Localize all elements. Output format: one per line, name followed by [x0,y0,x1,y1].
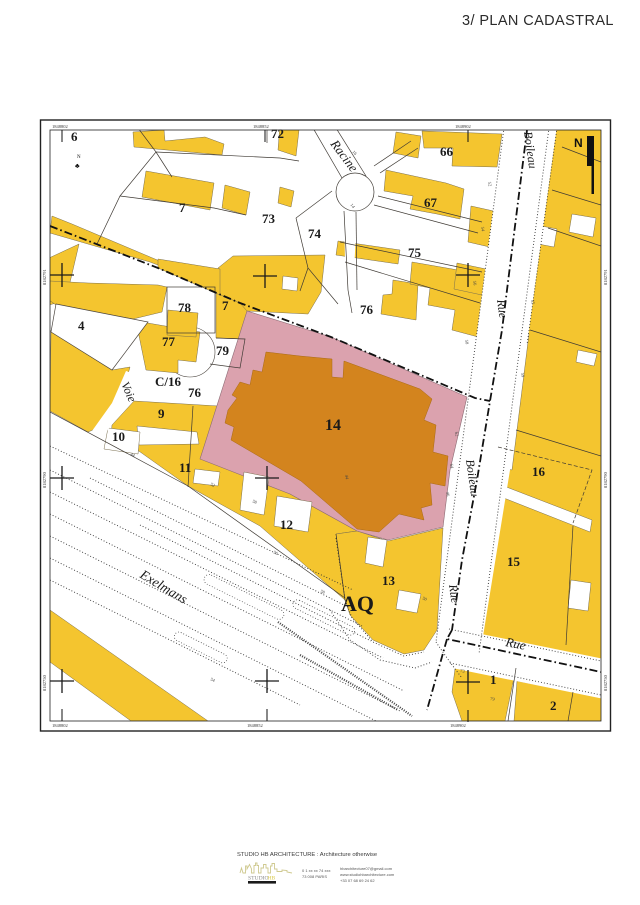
svg-text:72: 72 [271,126,284,141]
svg-text:11: 11 [179,460,191,475]
svg-text:8182790: 8182790 [603,472,608,489]
svg-text:1848902: 1848902 [455,124,471,129]
svg-text:74: 74 [308,226,322,241]
svg-text:66: 66 [440,144,454,159]
svg-text:67: 67 [424,195,438,210]
svg-text:78: 78 [178,300,192,315]
svg-text:15: 15 [507,554,521,569]
svg-text:64: 64 [449,463,455,469]
svg-text:58: 58 [464,339,470,345]
svg-text:Rue: Rue [494,297,511,319]
svg-text:16: 16 [532,464,546,479]
svg-text:13: 13 [382,573,396,588]
svg-text:62: 62 [454,431,460,436]
svg-text:8182791: 8182791 [603,269,608,285]
svg-text:C/16: C/16 [155,374,182,389]
svg-text:79: 79 [216,343,230,358]
svg-text:1848802: 1848802 [52,124,68,129]
svg-text:14: 14 [325,417,341,434]
svg-text:9: 9 [158,406,165,421]
svg-text:56: 56 [273,549,280,556]
svg-text:76: 76 [360,302,374,317]
svg-text:1848802: 1848802 [52,723,68,728]
svg-text:7: 7 [222,298,229,313]
svg-text:75: 75 [408,245,422,260]
svg-text:54: 54 [210,676,217,683]
svg-text:8182750: 8182750 [42,675,47,692]
svg-text:HB: HB [268,876,276,882]
svg-text:1848852: 1848852 [253,124,269,129]
svg-text:♣: ♣ [75,162,80,170]
svg-text:2: 2 [550,698,557,713]
svg-text:73: 73 [262,211,276,226]
svg-text:AQ: AQ [341,591,374,616]
svg-text:10: 10 [112,429,125,444]
svg-text:4: 4 [78,318,85,333]
svg-text:N: N [77,155,81,160]
svg-text:52: 52 [487,181,493,186]
svg-text:1848902: 1848902 [450,723,466,728]
svg-text:7: 7 [179,200,186,215]
svg-text:8182750: 8182750 [603,675,608,692]
svg-text:N: N [574,136,583,150]
svg-text:1848852: 1848852 [247,723,263,728]
svg-text:76: 76 [188,385,202,400]
svg-text:77: 77 [162,334,176,349]
svg-text:STUDIO: STUDIO [248,876,269,882]
svg-text:Exelmans: Exelmans [137,566,191,606]
svg-text:12: 12 [280,517,293,532]
svg-text:1: 1 [490,672,497,687]
svg-text:8182790: 8182790 [42,472,47,489]
svg-text:Rue: Rue [446,582,463,604]
svg-text:6: 6 [71,129,78,144]
svg-text:44: 44 [130,451,137,458]
svg-text:58: 58 [320,588,327,595]
svg-text:46: 46 [445,491,451,497]
svg-text:8182791: 8182791 [42,269,47,285]
